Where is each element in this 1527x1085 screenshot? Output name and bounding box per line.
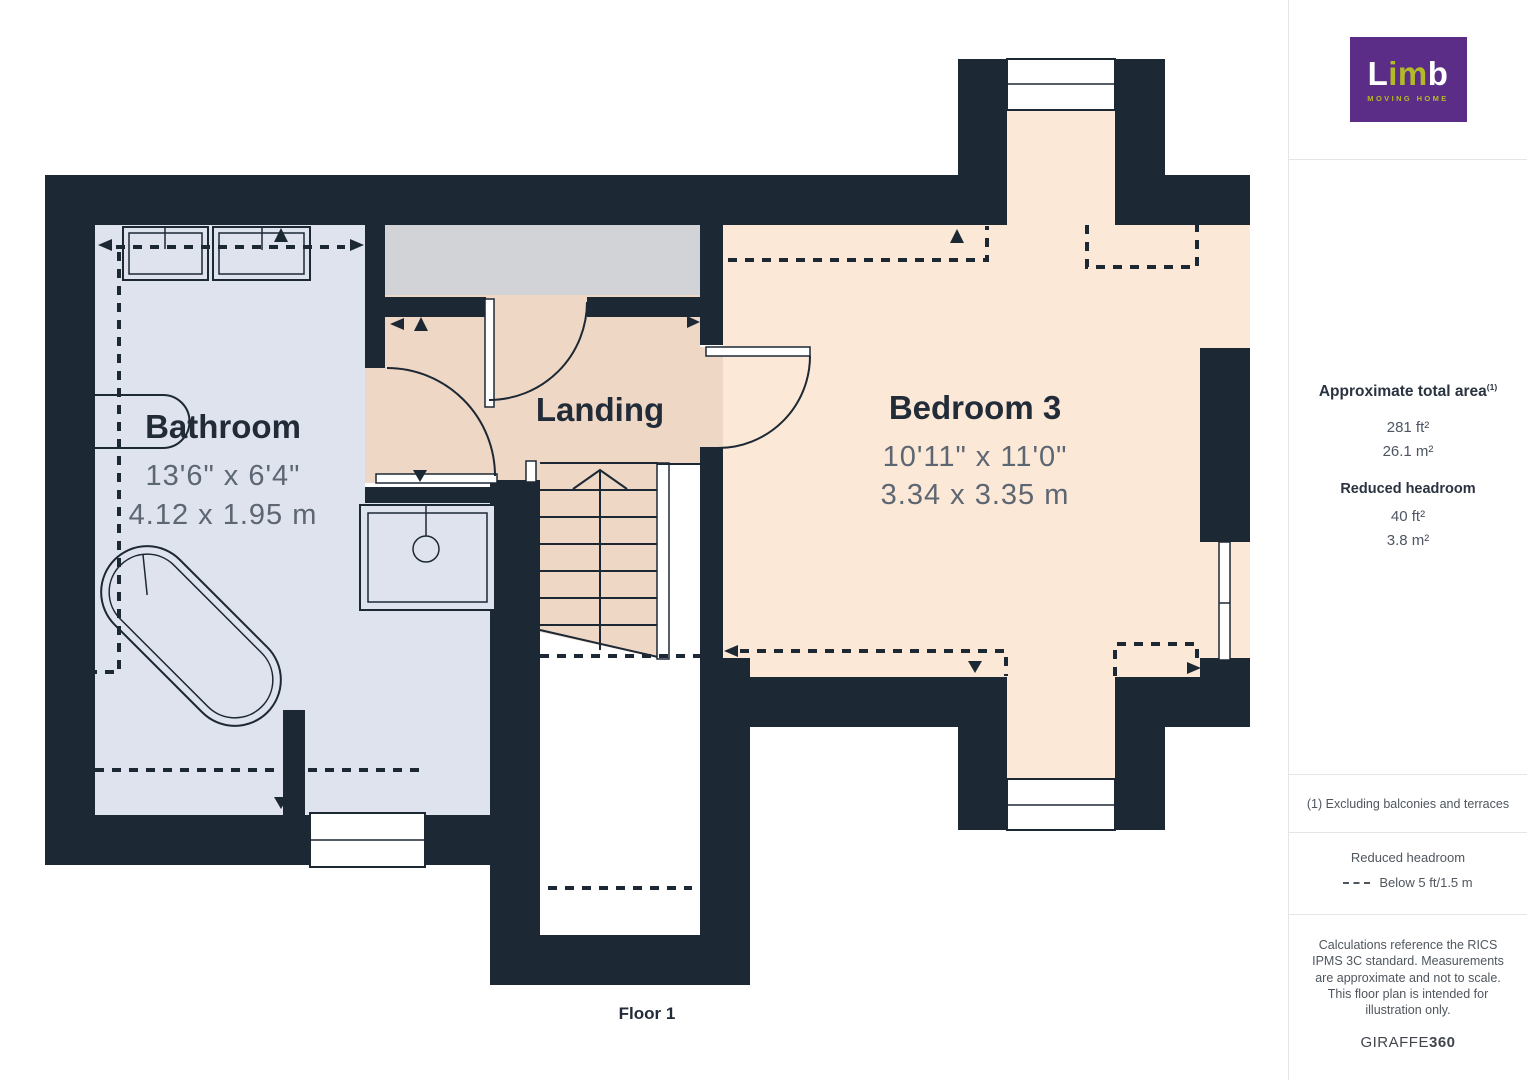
stairs-jamb — [526, 461, 536, 482]
logo-letter: im — [1388, 55, 1428, 92]
area-summary-section: Approximate total area(1) 281 ft² 26.1 m… — [1289, 160, 1527, 775]
reduced-headroom-m: 3.8 m² — [1387, 532, 1430, 549]
bedroom-door-threshold — [700, 347, 723, 447]
legend-title: Reduced headroom — [1289, 850, 1527, 865]
logo-tagline: MOVING HOME — [1367, 94, 1448, 103]
stairs-rail — [657, 463, 669, 659]
dormer-bottom-window — [1007, 779, 1115, 830]
bathroom-window — [310, 813, 425, 867]
total-area-title-text: Approximate total area — [1319, 383, 1487, 400]
footnote-text: (1) Excluding balconies and terraces — [1307, 797, 1509, 811]
stairs-floor — [528, 462, 660, 658]
footnote-section: (1) Excluding balconies and terraces — [1289, 775, 1527, 833]
bedroom-right-window — [1219, 542, 1230, 660]
bedroom-dims-ft: 10'11" x 11'0" — [883, 441, 1068, 473]
shower — [360, 505, 495, 610]
total-area-ft: 281 ft² — [1387, 419, 1430, 436]
giraffe360-brand: GIRAFFE360 — [1289, 1034, 1527, 1051]
bathroom-door-threshold — [365, 367, 385, 483]
limb-logo: Limb MOVING HOME — [1350, 37, 1467, 122]
giraffe360-brand-bold: 360 — [1429, 1034, 1456, 1051]
bedroom-label: Bedroom 3 — [889, 389, 1061, 426]
giraffe360-brand-normal: GIRAFFE — [1360, 1034, 1429, 1051]
skylight-window-1 — [123, 227, 208, 280]
legend-section: Reduced headroom Below 5 ft/1.5 m — [1289, 833, 1527, 915]
landing-label: Landing — [536, 391, 664, 428]
logo-letter: L — [1368, 55, 1389, 92]
reduced-headroom-dash-icon — [1343, 882, 1370, 884]
total-area-m: 26.1 m² — [1383, 443, 1434, 460]
bedroom-dormer-bottom-floor — [1007, 677, 1115, 780]
footnote-marker: (1) — [1487, 382, 1497, 392]
legend-item-label: Below 5 ft/1.5 m — [1379, 875, 1472, 890]
bedroom-dormer-top-floor — [1007, 100, 1115, 225]
skylight-window-2 — [213, 227, 310, 280]
dormer-top-window — [1007, 59, 1115, 110]
bathroom-label: Bathroom — [145, 408, 301, 445]
bathroom-dims-ft: 13'6" x 6'4" — [146, 460, 301, 492]
landing-floor — [385, 295, 700, 483]
limb-logo-wordmark: Limb — [1368, 57, 1449, 90]
info-sidebar: Limb MOVING HOME Approximate total area(… — [1288, 0, 1527, 1080]
floor-plan-svg: Bathroom 13'6" x 6'4" 4.12 x 1.95 m Land… — [0, 0, 1288, 1080]
legend-row: Below 5 ft/1.5 m — [1289, 875, 1527, 890]
eaves-storage-area — [385, 225, 700, 305]
disclaimer-section: Calculations reference the RICS IPMS 3C … — [1289, 915, 1527, 1080]
logo-section: Limb MOVING HOME — [1289, 0, 1527, 160]
bathroom-dims-m: 4.12 x 1.95 m — [129, 499, 318, 531]
disclaimer-text: Calculations reference the RICS IPMS 3C … — [1309, 937, 1507, 1018]
floor-plan: Bathroom 13'6" x 6'4" 4.12 x 1.95 m Land… — [0, 0, 1288, 1080]
reduced-headroom-ft: 40 ft² — [1391, 508, 1425, 525]
reduced-headroom-title: Reduced headroom — [1340, 481, 1475, 497]
floor-title: Floor 1 — [619, 1004, 676, 1023]
bedroom-dims-m: 3.34 x 3.35 m — [881, 479, 1070, 511]
logo-letter: b — [1428, 55, 1449, 92]
total-area-title: Approximate total area(1) — [1319, 382, 1497, 401]
